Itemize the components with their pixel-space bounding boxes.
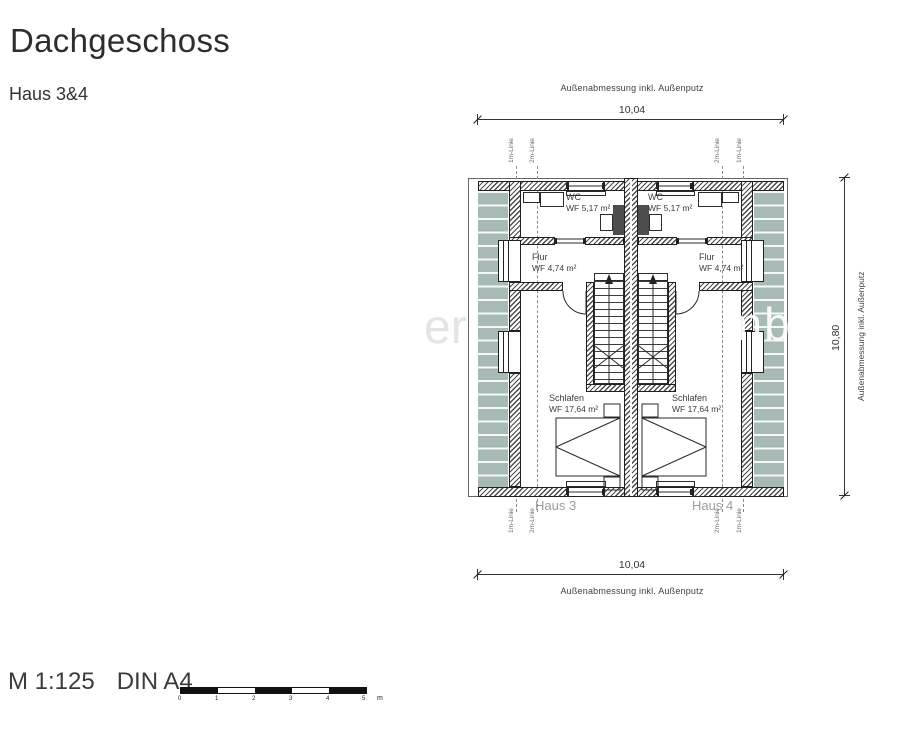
scale-tick: 2 [252, 696, 255, 702]
dim-right-value: 10,80 [831, 316, 842, 360]
wall-segment [638, 237, 677, 245]
dim-right-label: Außenabmessung inkl. Außenputz [857, 266, 866, 406]
washbasin [540, 192, 564, 207]
wall-segment [668, 282, 676, 392]
washbasin [722, 192, 739, 203]
window [568, 181, 604, 191]
dim-bottom-line [478, 574, 784, 575]
dim-bottom-label: Außenabmessung inkl. Außenputz [482, 586, 782, 596]
watermark-fragment: er [424, 300, 467, 355]
wall-segment [693, 181, 784, 191]
dim-top-line [478, 119, 784, 120]
room-label-wc-left: WC WF 5,17 m² [566, 192, 610, 214]
dim-top-label: Außenabmessung inkl. Außenputz [482, 83, 782, 93]
scale-tick: 4 [326, 696, 329, 702]
house-label-haus4: Haus 4 [692, 498, 733, 513]
page-subtitle: Haus 3&4 [9, 84, 88, 105]
height-line-label: 2m-Linie [530, 133, 537, 168]
toilet [600, 214, 613, 231]
window-board [566, 481, 606, 487]
wall-segment [637, 181, 658, 191]
wall-segment [586, 282, 594, 392]
wall-segment [478, 181, 568, 191]
wall-segment [741, 373, 753, 487]
wall-segment [509, 181, 521, 240]
scale-tick: 1 [215, 696, 218, 702]
window [498, 240, 521, 282]
dim-bottom-value: 10,04 [482, 559, 782, 571]
height-line-2m [722, 166, 723, 512]
height-line-2m [537, 166, 538, 512]
window [741, 240, 764, 282]
washbasin [523, 192, 540, 203]
dim-top-value: 10,04 [482, 104, 782, 116]
scale-tick: 3 [289, 696, 292, 702]
wall-segment [585, 237, 624, 245]
scale-unit: m [377, 695, 383, 702]
room-label-schlafen-left: Schlafen WF 17,64 m² [549, 393, 598, 415]
installation-shaft [613, 205, 624, 235]
washbasin [698, 192, 722, 207]
wall-segment [741, 181, 753, 240]
stair-flight-right [638, 280, 668, 384]
height-line-label: 2m-Linie [715, 133, 722, 168]
room-label-flur-right: Flur WF 4,74 m² [699, 252, 743, 274]
scale-value: M 1:125 [8, 668, 95, 695]
room-label-schlafen-right: Schlafen WF 17,64 m² [672, 393, 721, 415]
window [498, 331, 521, 373]
wall-segment [478, 487, 568, 497]
wall-segment [699, 282, 753, 291]
drawing-sheet: Dachgeschoss Haus 3&4 Außenabmessung ink… [0, 0, 920, 746]
window [741, 331, 764, 373]
height-line-label: 1m-Linie [509, 133, 516, 168]
dim-right-line [844, 178, 845, 496]
scale-note: M 1:125DIN A4 [8, 668, 193, 696]
house-label-haus3: Haus 3 [535, 498, 576, 513]
toilet [649, 214, 662, 231]
room-label-wc-right: WC WF 5,17 m² [648, 192, 692, 214]
window-board [656, 481, 695, 487]
page-title: Dachgeschoss [10, 22, 230, 60]
window [568, 487, 604, 497]
scale-tick: 0 [178, 696, 181, 702]
scale-bar [180, 687, 367, 694]
height-line-label: 1m-Linie [509, 503, 516, 539]
height-line-label: 1m-Linie [737, 133, 744, 168]
stair-flight-left [594, 280, 624, 384]
window [658, 181, 693, 191]
wall-segment [637, 487, 658, 497]
scale-tick: 5 [362, 696, 365, 702]
window [658, 487, 693, 497]
party-wall [624, 178, 638, 497]
wall-segment [604, 181, 625, 191]
wall-segment [693, 487, 784, 497]
wall-segment [509, 282, 563, 291]
wall-segment [604, 487, 625, 497]
wall-segment [509, 373, 521, 487]
room-label-flur-left: Flur WF 4,74 m² [532, 252, 576, 274]
